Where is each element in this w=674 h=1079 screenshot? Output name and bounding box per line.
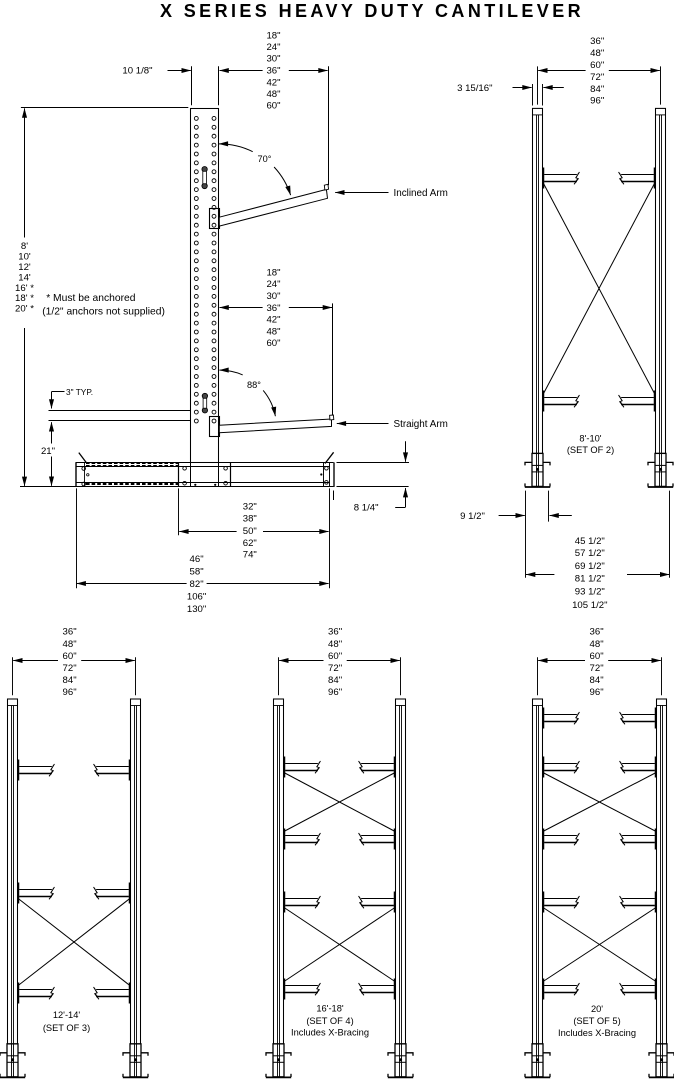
svg-text:60": 60": [63, 651, 77, 662]
svg-text:30": 30": [266, 291, 280, 302]
svg-text:3 15/16": 3 15/16": [457, 83, 492, 94]
svg-text:30": 30": [266, 54, 280, 65]
svg-text:58": 58": [190, 567, 204, 578]
svg-text:60": 60": [266, 338, 280, 349]
svg-text:32": 32": [243, 502, 257, 513]
svg-text:60": 60": [266, 100, 280, 111]
svg-text:130": 130": [187, 604, 206, 615]
svg-text:10 1/8": 10 1/8": [122, 66, 152, 77]
svg-text:42": 42": [266, 77, 280, 88]
svg-text:48": 48": [590, 639, 604, 650]
svg-text:72": 72": [590, 663, 604, 674]
svg-text:18": 18": [266, 31, 280, 42]
svg-text:(SET OF 2): (SET OF 2): [567, 445, 614, 455]
svg-text:69 1/2": 69 1/2": [575, 561, 605, 572]
svg-text:81 1/2": 81 1/2": [575, 574, 605, 585]
svg-text:12': 12': [18, 262, 31, 273]
svg-text:106": 106": [187, 591, 206, 602]
svg-text:96": 96": [590, 687, 604, 698]
svg-text:(1/2" anchors not supplied): (1/2" anchors not supplied): [42, 307, 165, 318]
svg-text:48": 48": [266, 89, 280, 100]
svg-text:20' *: 20' *: [15, 304, 34, 315]
svg-text:Straight Arm: Straight Arm: [394, 419, 448, 430]
svg-text:60": 60": [328, 651, 342, 662]
svg-text:9 1/2": 9 1/2": [460, 511, 485, 522]
svg-text:X SERIES HEAVY DUTY CANTILEVER: X SERIES HEAVY DUTY CANTILEVER: [160, 1, 584, 21]
svg-text:62": 62": [243, 538, 257, 549]
svg-text:8'-10': 8'-10': [579, 433, 601, 443]
svg-text:84": 84": [590, 675, 604, 686]
svg-text:42": 42": [266, 315, 280, 326]
svg-text:48": 48": [266, 326, 280, 337]
svg-text:36": 36": [590, 36, 604, 47]
svg-text:74": 74": [243, 550, 257, 561]
svg-text:88°: 88°: [247, 380, 261, 390]
svg-text:Inclined Arm: Inclined Arm: [394, 188, 448, 199]
svg-text:48": 48": [590, 48, 604, 59]
svg-text:36": 36": [266, 66, 280, 77]
svg-text:84": 84": [63, 675, 77, 686]
svg-text:72": 72": [63, 663, 77, 674]
svg-text:72": 72": [590, 72, 604, 83]
svg-text:36": 36": [590, 627, 604, 638]
svg-text:48": 48": [63, 639, 77, 650]
svg-text:8': 8': [21, 241, 28, 252]
svg-text:18": 18": [266, 268, 280, 279]
svg-text:24": 24": [266, 42, 280, 53]
svg-text:45 1/2": 45 1/2": [575, 536, 605, 547]
svg-text:36": 36": [328, 627, 342, 638]
svg-text:20': 20': [591, 1004, 603, 1014]
svg-text:(SET OF 5): (SET OF 5): [573, 1016, 620, 1026]
svg-text:46": 46": [190, 554, 204, 565]
svg-text:12'-14': 12'-14': [53, 1010, 81, 1020]
svg-text:14': 14': [18, 272, 31, 283]
svg-text:16' *: 16' *: [15, 283, 34, 294]
svg-text:Includes X-Bracing: Includes X-Bracing: [291, 1027, 369, 1037]
svg-text:36": 36": [63, 627, 77, 638]
svg-text:96": 96": [63, 687, 77, 698]
svg-text:84": 84": [328, 675, 342, 686]
svg-text:60": 60": [590, 60, 604, 71]
svg-text:18' *: 18' *: [15, 293, 34, 304]
svg-text:48": 48": [328, 639, 342, 650]
svg-text:10': 10': [18, 251, 31, 262]
svg-text:38": 38": [243, 514, 257, 525]
svg-text:105 1/2": 105 1/2": [572, 600, 607, 611]
svg-text:8 1/4": 8 1/4": [354, 502, 379, 513]
svg-text:96": 96": [328, 687, 342, 698]
svg-text:(SET OF 3): (SET OF 3): [43, 1023, 90, 1033]
svg-text:(SET OF 4): (SET OF 4): [306, 1016, 353, 1026]
svg-text:50": 50": [243, 526, 257, 537]
svg-text:96": 96": [590, 96, 604, 107]
svg-text:72": 72": [328, 663, 342, 674]
svg-text:84": 84": [590, 84, 604, 95]
svg-text:57 1/2": 57 1/2": [575, 548, 605, 559]
svg-text:24": 24": [266, 279, 280, 290]
svg-text:82": 82": [190, 579, 204, 590]
svg-text:70°: 70°: [258, 154, 272, 164]
svg-text:3" TYP.: 3" TYP.: [66, 387, 93, 397]
svg-text:* Must be anchored: * Must be anchored: [46, 293, 136, 304]
svg-text:36": 36": [266, 303, 280, 314]
svg-text:Includes X-Bracing: Includes X-Bracing: [558, 1028, 636, 1038]
svg-text:93 1/2": 93 1/2": [575, 587, 605, 598]
svg-text:21": 21": [41, 446, 55, 457]
svg-text:60": 60": [590, 651, 604, 662]
svg-text:16'-18': 16'-18': [316, 1004, 344, 1014]
